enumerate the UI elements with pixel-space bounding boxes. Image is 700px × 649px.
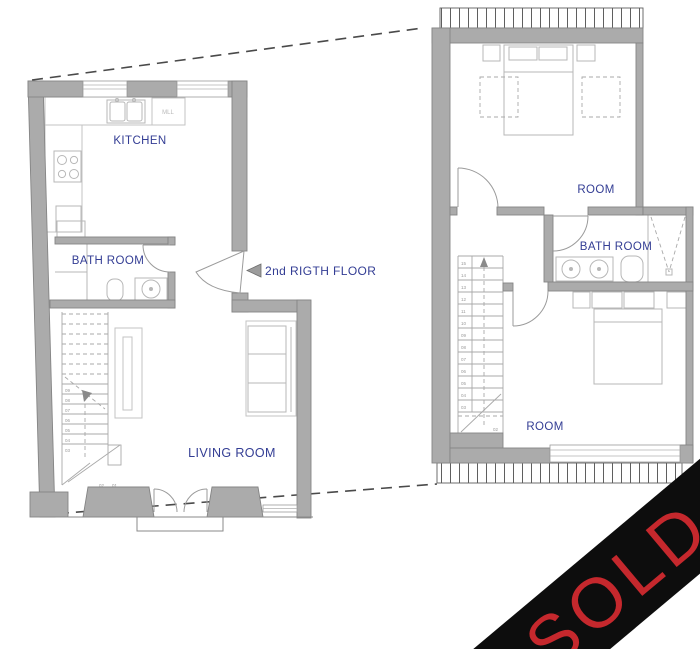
svg-text:13: 13 [461, 285, 467, 290]
upper-room-label: ROOM [577, 184, 614, 196]
bathroom-fixtures [55, 244, 167, 302]
svg-text:03: 03 [461, 405, 467, 410]
left-plan-doors [143, 245, 244, 512]
svg-text:03: 03 [65, 448, 71, 453]
table [115, 328, 142, 418]
svg-text:09: 09 [65, 388, 71, 393]
floor-plan-page: MLL [0, 0, 700, 649]
balcony-door-jamb [207, 487, 263, 517]
living-room-label: LIVING ROOM [188, 446, 276, 460]
bathroom-left-label: BATH ROOM [72, 255, 144, 267]
sofa [246, 321, 296, 416]
svg-text:07: 07 [65, 408, 71, 413]
lower-room-furniture [573, 292, 688, 384]
svg-text:05: 05 [65, 428, 71, 433]
toilet [107, 279, 123, 301]
svg-text:15: 15 [461, 261, 467, 266]
svg-text:07: 07 [461, 357, 467, 362]
svg-text:04: 04 [65, 438, 71, 443]
right-plan-doors [458, 168, 588, 326]
svg-text:09: 09 [461, 333, 467, 338]
right-plan-walls [432, 28, 693, 463]
kitchen-fixtures: MLL [45, 97, 185, 237]
appliance-label: MLL [162, 110, 174, 116]
terrace-railing-bottom [437, 463, 682, 483]
lower-room-label: ROOM [526, 421, 563, 433]
bed [594, 309, 662, 384]
svg-text:08: 08 [65, 398, 71, 403]
balcony-step [137, 517, 223, 531]
floor-note-label: 2nd RIGTH FLOOR [265, 264, 376, 278]
svg-text:10: 10 [461, 321, 467, 326]
svg-text:11: 11 [461, 309, 466, 314]
terrace-railing-top [440, 8, 643, 28]
right-plan-window [550, 445, 680, 462]
svg-text:06: 06 [65, 418, 71, 423]
svg-text:05: 05 [461, 381, 467, 386]
balcony-door-jamb [83, 487, 154, 517]
stair-direction-arrow [82, 390, 92, 402]
vanity [556, 257, 613, 281]
sold-banner-text: SOLD [511, 486, 700, 649]
right-staircase: 15 14 13 12 11 10 09 08 07 06 05 04 03 0… [458, 256, 503, 433]
left-arrow-icon [247, 264, 261, 277]
svg-text:06: 06 [461, 369, 467, 374]
upper-room-furniture [480, 45, 620, 135]
svg-text:14: 14 [461, 273, 467, 278]
svg-text:04: 04 [461, 393, 467, 398]
svg-text:02: 02 [493, 427, 499, 432]
stair-direction-arrow [480, 257, 488, 267]
floor-annotation: 2nd RIGTH FLOOR [247, 264, 376, 278]
bathroom-right-label: BATH ROOM [580, 241, 652, 253]
floor-plan-drawing: MLL [0, 0, 700, 649]
right-floor-plan: 15 14 13 12 11 10 09 08 07 06 05 04 03 0… [432, 8, 693, 483]
toilet [621, 256, 643, 282]
left-floor-plan: MLL [28, 81, 313, 531]
kitchen-label: KITCHEN [113, 135, 166, 147]
svg-text:08: 08 [461, 345, 467, 350]
entry-door [196, 251, 244, 293]
left-staircase: 09 08 07 06 05 04 03 02 01 [62, 312, 121, 488]
svg-text:12: 12 [461, 297, 467, 302]
